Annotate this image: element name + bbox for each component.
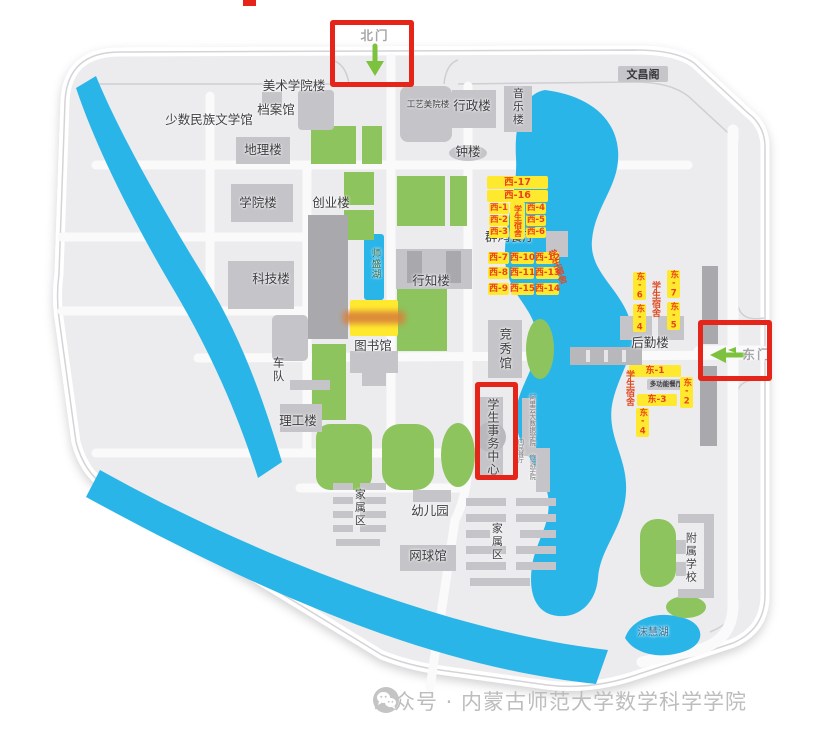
dorm-label-west-1: 西-1 [489, 203, 509, 214]
dorm-label-west-17: 西-17 [487, 176, 548, 189]
north-gate-highlight-box [330, 20, 414, 87]
building-label-tourism-college: 旅游学院 [527, 454, 534, 480]
dorm-label-east-2: 东-2 [680, 377, 693, 408]
dorm-label-east-1: 东-1 [629, 365, 681, 377]
area-label-family-east: 家属区 [490, 523, 503, 562]
building-label-affiliated-school: 附属学校 [684, 532, 697, 584]
building-label-music: 音乐楼 [511, 88, 524, 127]
top-edge-red-mark [243, 0, 256, 6]
dorm-label-west-3: 西-3 [489, 227, 509, 238]
dorm-label-east-4-lower: 东-4 [636, 408, 649, 437]
dorm-label-west-6: 西-6 [526, 227, 546, 238]
building-label-tennis-hall: 网球馆 [409, 549, 447, 563]
east-gate-highlight-box [698, 320, 772, 381]
building-label-college: 学院楼 [239, 196, 277, 210]
building-label-library: 图书馆 [354, 339, 392, 353]
building-label-kindergarten: 幼儿园 [411, 504, 449, 518]
dorm-label-east-7: 东-7 [667, 270, 680, 298]
dorm-label-east-6: 东-6 [633, 272, 646, 300]
dorm-label-east-3: 东-3 [637, 394, 677, 406]
lake-label-shisheng: 师盛湖 [369, 248, 380, 280]
building-label-science-tech: 科技楼 [252, 272, 290, 286]
dorm-label-west-15: 西-15 [511, 283, 534, 295]
building-label-art-college: 美术学院楼 [263, 79, 326, 93]
building-label-jingxiu-gym: 竞秀馆 [497, 327, 511, 371]
building-label-xingzhi: 行知楼 [412, 274, 450, 288]
dorm-label-west-14: 西-14 [536, 283, 559, 295]
dorm-label-west-11: 西-11 [511, 267, 534, 279]
building-label-aliyun-bigdata: 阿里云大数据学院 [527, 394, 534, 446]
dorm-label-student-dorm-east-lower: 学生宿舍 [624, 370, 633, 412]
lake-label-mohui: 沫慧湖 [637, 626, 669, 638]
building-label-minority-literature: 少数民族文学馆 [165, 113, 253, 127]
dorm-label-east-4-upper: 东-4 [633, 304, 646, 332]
dorm-label-west-2: 西-2 [489, 215, 509, 226]
student-affairs-highlight-box [475, 382, 518, 480]
dorm-label-east-5: 东-5 [667, 302, 680, 330]
building-label-administration: 行政楼 [453, 99, 491, 113]
dorm-label-west-7: 西-7 [488, 252, 509, 264]
dorm-label-west-9: 西-9 [488, 283, 509, 295]
building-label-geography: 地理楼 [244, 143, 282, 157]
watermark: 公众号 · 内蒙古师范大学数学科学学院 [372, 686, 747, 716]
building-label-bell-tower: 钟楼 [455, 145, 480, 159]
building-label-ligong: 理工楼 [279, 414, 317, 428]
building-label-motor-pool: 车队 [271, 357, 284, 384]
building-label-archives: 档案馆 [257, 103, 295, 117]
dorm-label-student-dorm-west-upper: 学生宿舍 [510, 202, 525, 239]
campus-map: 北门 东门 文昌阁 美术学院楼 档案馆 少数民族文学馆 地理楼 学院楼 创业楼 … [0, 0, 834, 734]
dorm-label-west-5: 西-5 [526, 215, 546, 226]
building-label-logistics: 后勤楼 [631, 336, 669, 350]
dorm-label-west-4: 西-4 [526, 203, 546, 214]
dorm-label-west-16: 西-16 [487, 190, 548, 202]
watermark-text: 公众号 · 内蒙古师范大学数学科学学院 [372, 686, 747, 716]
building-label-wenchang-pavilion: 文昌阁 [618, 66, 668, 82]
dorm-label-student-dorm-east-upper: 学生宿舍 [650, 281, 659, 321]
dorm-label-west-10: 西-10 [511, 252, 534, 264]
dorm-label-west-8: 西-8 [488, 267, 509, 279]
building-label-entrepreneurship: 创业楼 [312, 196, 350, 210]
area-label-family-west: 家属区 [353, 489, 366, 528]
wechat-icon [372, 686, 400, 714]
building-label-craft-art-academy: 工艺美院楼 [407, 101, 450, 111]
